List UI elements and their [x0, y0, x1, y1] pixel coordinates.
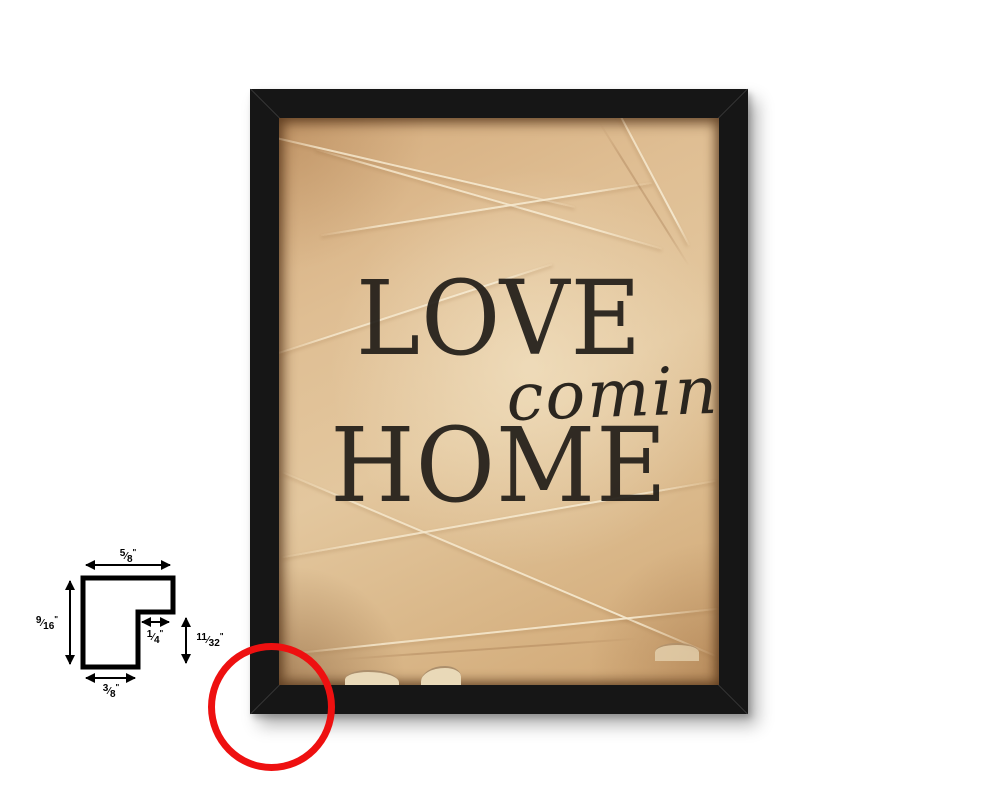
paper-crease	[316, 148, 663, 249]
paper-crease	[321, 182, 652, 236]
corner-highlight-circle	[208, 643, 335, 771]
picture-frame: LOVE coming HOME	[250, 89, 748, 714]
dim-label-bottom: 3⁄8"	[103, 683, 120, 700]
paper-torn-spot	[345, 670, 399, 685]
paper-crease	[279, 134, 575, 208]
artwork-word-home: HOME	[292, 415, 706, 518]
paper-crease	[339, 638, 638, 661]
dim-label-left: 9⁄16"	[36, 615, 58, 632]
paper-crease	[598, 121, 690, 266]
paper-crease	[618, 118, 690, 246]
dim-label-rabbet-width: 1⁄4"	[147, 629, 164, 646]
frame-miter-joint	[716, 89, 748, 121]
paper-torn-spot	[421, 666, 461, 685]
dim-label-top: 5⁄8"	[120, 548, 137, 565]
dim-label-rabbet-depth: 11⁄32"	[196, 632, 223, 649]
frame-miter-joint	[716, 683, 748, 715]
product-photo: LOVE coming HOME 5⁄8" 9⁄16" 1⁄4"	[0, 0, 1000, 800]
paper-torn-spot	[655, 643, 699, 661]
molding-dimension-diagram: 5⁄8" 9⁄16" 1⁄4" 11⁄32" 3⁄8"	[28, 542, 238, 707]
artwork-paper: LOVE coming HOME	[279, 118, 719, 685]
frame-miter-joint	[250, 89, 282, 121]
